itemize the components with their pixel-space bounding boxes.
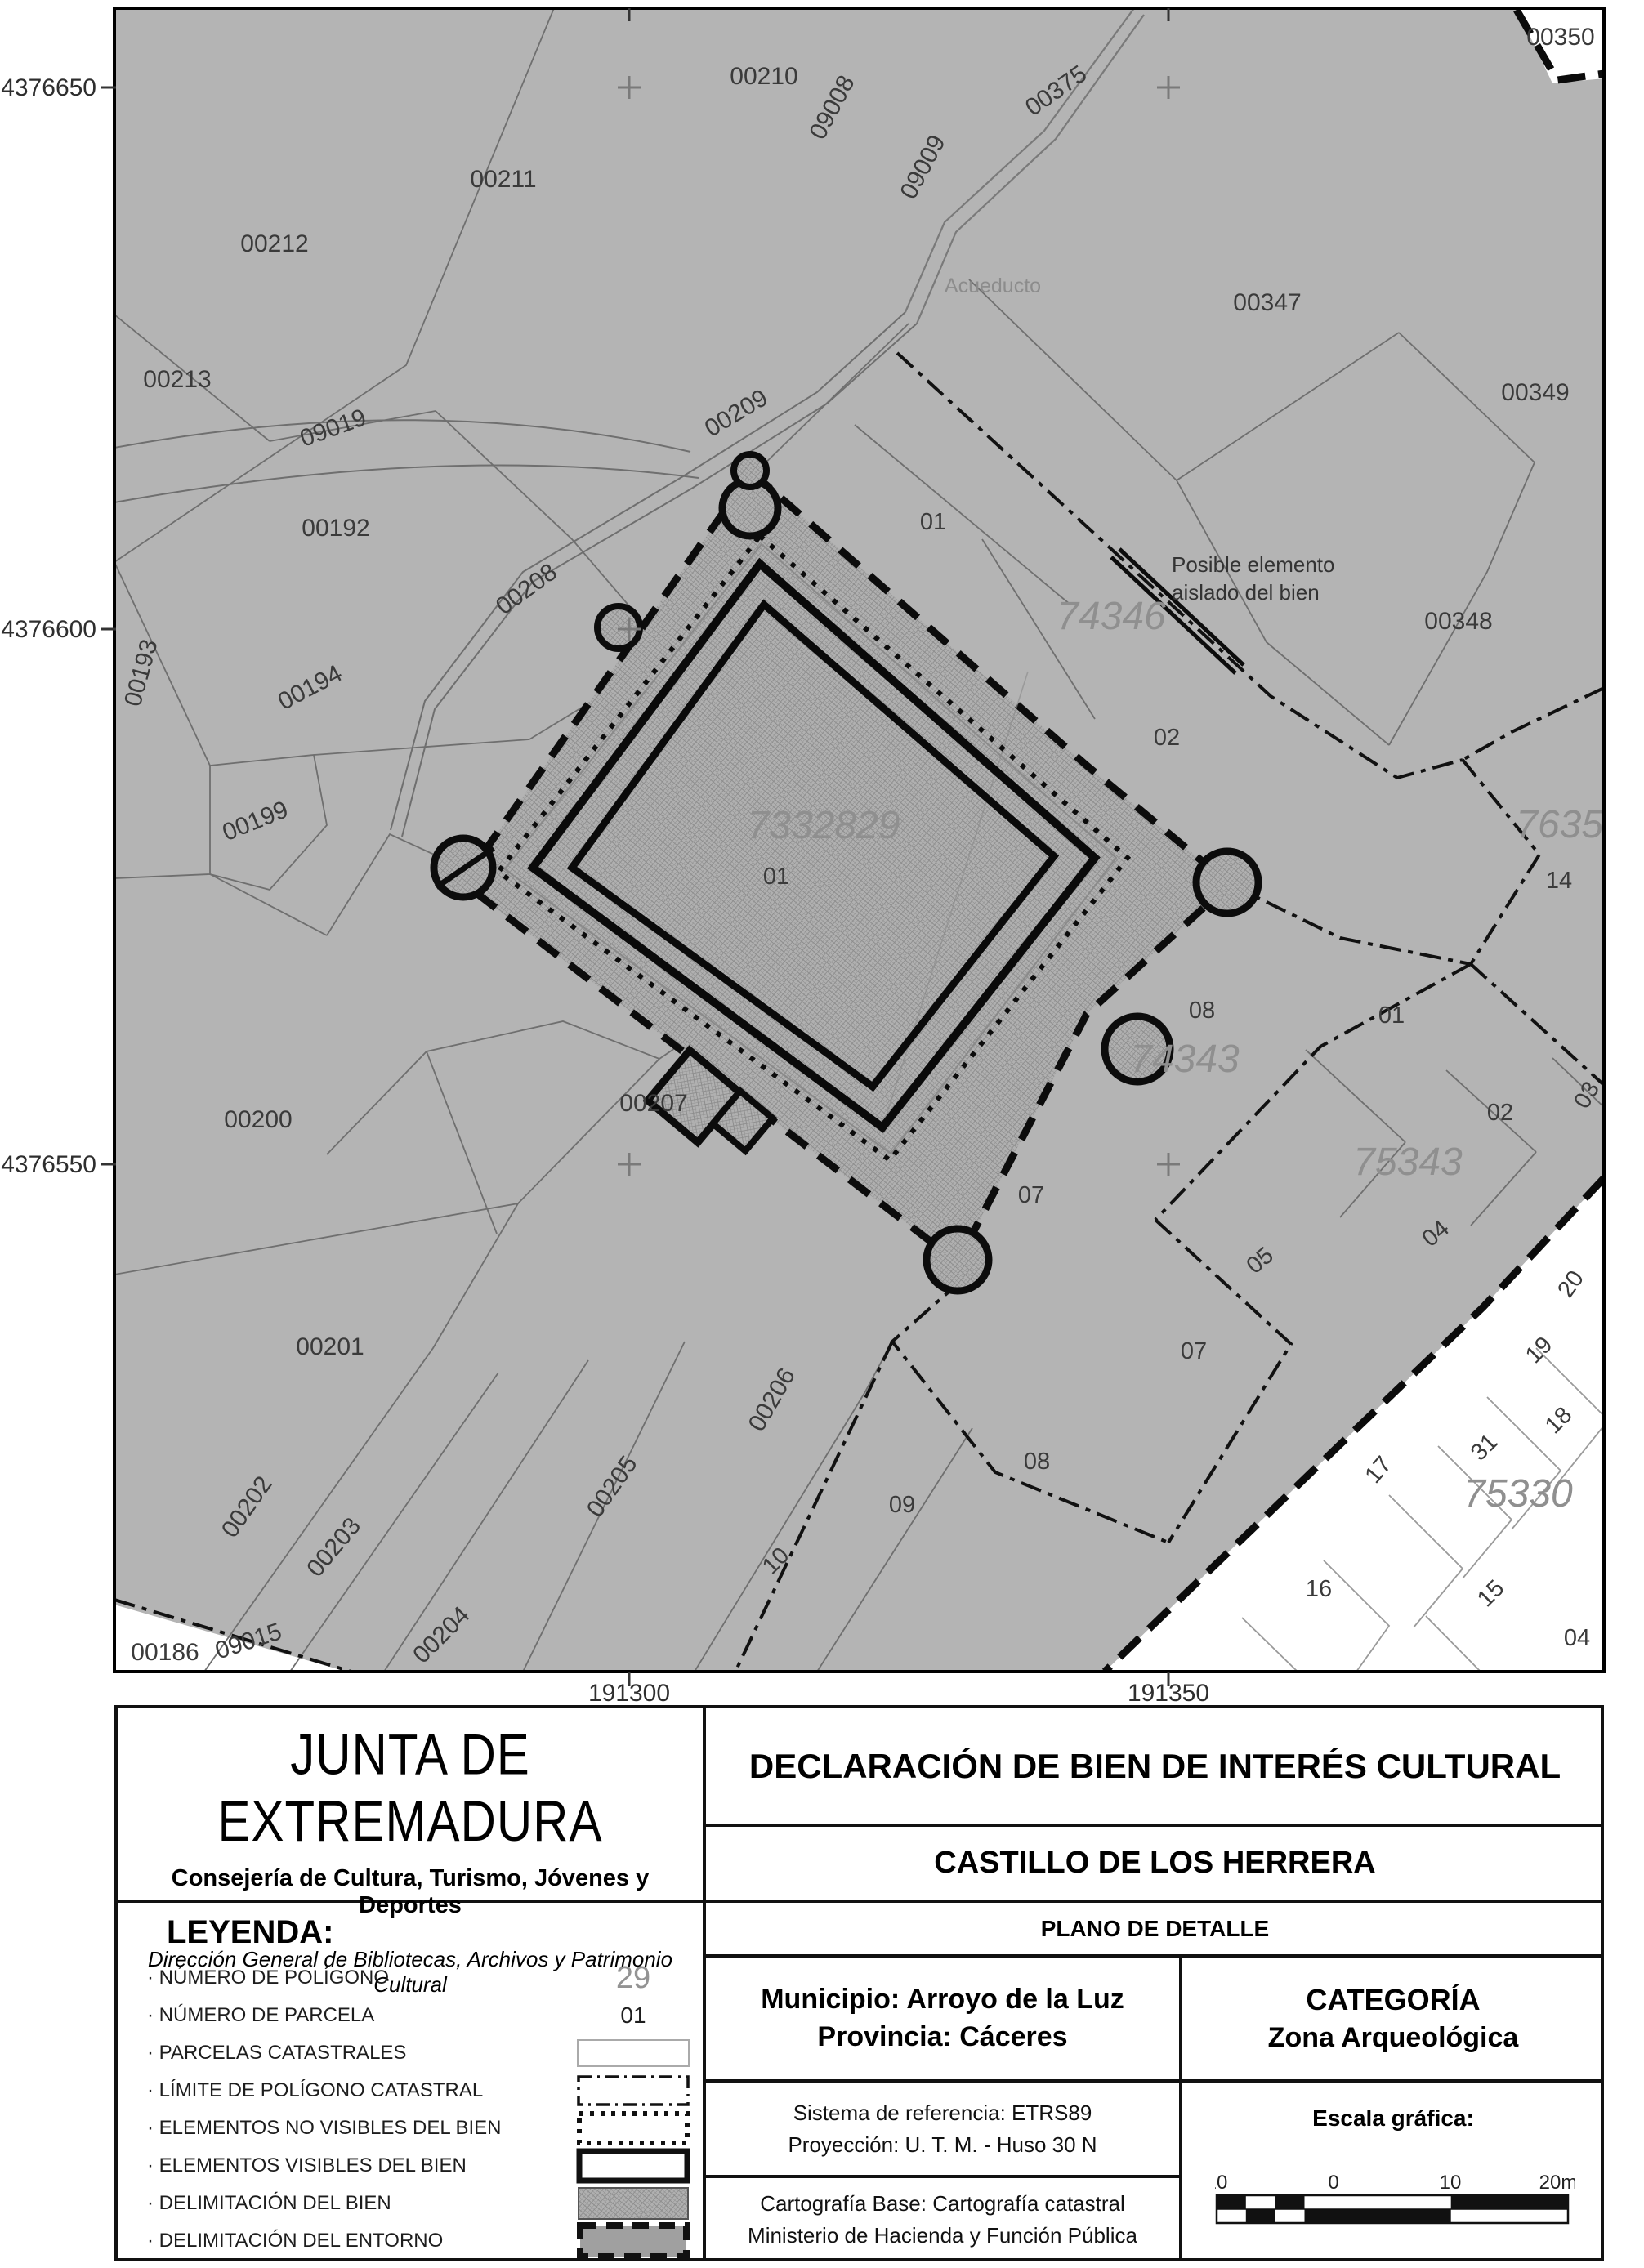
legend-row-bien-delimitation: · DELIMITACIÓN DEL BIEN bbox=[147, 2185, 703, 2222]
legend-cell: LEYENDA: · NÚMERO DE POLÍGONO 29 · NÚMER… bbox=[118, 1903, 706, 2261]
tower-northwest bbox=[597, 606, 640, 649]
province: Provincia: Cáceres bbox=[817, 2019, 1067, 2056]
map-label: 00192 bbox=[302, 515, 369, 542]
map-label: 04 bbox=[1564, 1625, 1590, 1651]
legend-bullet: · bbox=[147, 1967, 154, 1989]
legend-label: · ELEMENTOS NO VISIBLES DEL BIEN bbox=[147, 2117, 564, 2140]
map-label: aislado del bien bbox=[1172, 580, 1320, 605]
legend-label: · ELEMENTOS VISIBLES DEL BIEN bbox=[147, 2154, 564, 2177]
legend-label: · NÚMERO DE PARCELA bbox=[147, 2004, 564, 2027]
legend-swatch bbox=[564, 2221, 703, 2261]
map-label: 01 bbox=[763, 864, 789, 890]
bic-declaration-sheet: 0021000211002120021309019001920019300194… bbox=[0, 0, 1644, 2268]
legend-bullet: · bbox=[147, 2004, 154, 2026]
map-label: 75330 bbox=[1463, 1472, 1573, 1516]
legend-bullet: · bbox=[147, 2079, 154, 2101]
legend-label: · LÍMITE DE POLÍGONO CATASTRAL bbox=[147, 2079, 564, 2102]
elements-not-visible-swatch bbox=[576, 2110, 690, 2146]
map-label: 00349 bbox=[1501, 379, 1569, 406]
map-label: 7332829 bbox=[748, 804, 900, 847]
legend-title: LEYENDA: bbox=[167, 1914, 703, 1951]
monument-name: CASTILLO DE LOS HERRERA bbox=[934, 1846, 1375, 1881]
cadastral-parcels-swatch bbox=[576, 2038, 690, 2068]
legend-swatch bbox=[564, 2185, 703, 2221]
bien-delimitation-swatch bbox=[576, 2185, 690, 2221]
map-label: 74346 bbox=[1057, 595, 1166, 638]
parcel-number-sample: 01 bbox=[620, 2002, 646, 2029]
axis-y-label: 4376600 bbox=[1, 616, 96, 643]
legend-bullet: · bbox=[147, 2230, 154, 2252]
map-label: 00207 bbox=[619, 1090, 687, 1117]
scale-bar: 10 0 10 20m bbox=[1215, 2172, 1575, 2235]
carto-base: Cartografía Base: Cartografía catastral bbox=[760, 2188, 1125, 2220]
axis-y-label: 4376650 bbox=[1, 74, 96, 101]
legend-row-elements-visible: · ELEMENTOS VISIBLES DEL BIEN bbox=[147, 2147, 703, 2185]
legend-text: ELEMENTOS VISIBLES DEL BIEN bbox=[159, 2154, 467, 2176]
map-label: 08 bbox=[1024, 1449, 1050, 1475]
municipality: Municipio: Arroyo de la Luz bbox=[761, 1981, 1124, 2019]
legend-row-polygon-limit: · LÍMITE DE POLÍGONO CATASTRAL bbox=[147, 2072, 703, 2110]
doc-title-cell: DECLARACIÓN DE BIEN DE INTERÉS CULTURAL bbox=[706, 1708, 1604, 1827]
map-label: 01 bbox=[1378, 1002, 1405, 1029]
legend-bullet: · bbox=[147, 2192, 154, 2214]
plan-type-cell: PLANO DE DETALLE bbox=[706, 1903, 1604, 1958]
legend-text: NÚMERO DE POLÍGONO bbox=[159, 1967, 389, 1989]
tower-east bbox=[1196, 851, 1258, 913]
map-label: 09 bbox=[889, 1492, 915, 1518]
scale-tick-label: 0 bbox=[1328, 2172, 1338, 2194]
axis-y-label: 4376550 bbox=[1, 1151, 96, 1178]
scale-bar-checker bbox=[1217, 2195, 1568, 2223]
tower-north-cap bbox=[734, 454, 766, 487]
ref-system: Sistema de referencia: ETRS89 bbox=[793, 2097, 1092, 2129]
elements-visible-swatch bbox=[576, 2148, 690, 2184]
map-label: 14 bbox=[1546, 868, 1572, 894]
map-label: 00212 bbox=[240, 230, 308, 257]
map-label: 00201 bbox=[296, 1333, 364, 1360]
legend-swatch bbox=[564, 2074, 703, 2107]
map-label: 07 bbox=[1018, 1182, 1044, 1208]
scale-tick-label: 20m bbox=[1539, 2172, 1575, 2194]
legend-row-elements-not-visible: · ELEMENTOS NO VISIBLES DEL BIEN bbox=[147, 2110, 703, 2147]
axis-x-label: 191350 bbox=[1128, 1680, 1209, 1704]
legend-bullet: · bbox=[147, 2117, 154, 2139]
scale-label: Escala gráfica: bbox=[1182, 2105, 1604, 2132]
map-label: 00211 bbox=[470, 166, 536, 193]
legend-row-entorno-delimitation: · DELIMITACIÓN DEL ENTORNO bbox=[147, 2222, 703, 2260]
org-cell: JUNTA DE EXTREMADURA Consejería de Cultu… bbox=[118, 1708, 706, 1903]
legend-label: · NÚMERO DE POLÍGONO bbox=[147, 1967, 564, 1989]
map-label: 16 bbox=[1306, 1576, 1332, 1602]
category-label: CATEGORÍA bbox=[1306, 1983, 1480, 2017]
reference-cell: Sistema de referencia: ETRS89 Proyección… bbox=[706, 2083, 1182, 2178]
map-label: 00348 bbox=[1424, 608, 1492, 635]
cadastral-map: 0021000211002120021309019001920019300194… bbox=[0, 0, 1644, 1704]
map-label: 02 bbox=[1154, 725, 1180, 751]
map-label: 75343 bbox=[1353, 1141, 1463, 1184]
scale-bar-graphic: 10 0 10 20m bbox=[1215, 2172, 1575, 2231]
map-label: Posible elemento bbox=[1172, 552, 1334, 577]
org-name: JUNTA DE EXTREMADURA bbox=[118, 1721, 703, 1855]
scale-tick-label: 10 bbox=[1440, 2172, 1462, 2194]
ministry: Ministerio de Hacienda y Función Pública bbox=[748, 2220, 1137, 2252]
legend-row-cadastral-parcels: · PARCELAS CATASTRALES bbox=[147, 2034, 703, 2072]
legend-bullet: · bbox=[147, 2042, 154, 2064]
monument-cell: CASTILLO DE LOS HERRERA bbox=[706, 1827, 1604, 1903]
projection: Proyección: U. T. M. - Huso 30 N bbox=[788, 2129, 1097, 2161]
map-label: 00213 bbox=[143, 366, 211, 393]
tower-south bbox=[927, 1229, 989, 1291]
legend-swatch bbox=[564, 2110, 703, 2146]
plan-type: PLANO DE DETALLE bbox=[1041, 1916, 1269, 1942]
map-label: 00347 bbox=[1233, 289, 1301, 316]
title-block: JUNTA DE EXTREMADURA Consejería de Cultu… bbox=[114, 1705, 1604, 2261]
map-label: 74343 bbox=[1130, 1038, 1240, 1081]
map-label: 02 bbox=[1487, 1100, 1513, 1126]
map-label: 08 bbox=[1189, 998, 1215, 1024]
legend-row-polygon-number: · NÚMERO DE POLÍGONO 29 bbox=[147, 1959, 703, 1997]
legend-text: PARCELAS CATASTRALES bbox=[159, 2042, 407, 2064]
scale-cell: Escala gráfica: 10 0 10 20m bbox=[1182, 2083, 1604, 2261]
legend-text: LÍMITE DE POLÍGONO CATASTRAL bbox=[159, 2079, 484, 2101]
legend-text: NÚMERO DE PARCELA bbox=[159, 2004, 375, 2026]
legend-text: DELIMITACIÓN DEL ENTORNO bbox=[159, 2230, 444, 2252]
legend-swatch bbox=[564, 2038, 703, 2068]
map-label: 00186 bbox=[131, 1639, 199, 1666]
legend-text: DELIMITACIÓN DEL BIEN bbox=[159, 2192, 391, 2214]
municipality-cell: Municipio: Arroyo de la Luz Provincia: C… bbox=[706, 1958, 1182, 2083]
category-value: Zona Arqueológica bbox=[1268, 2022, 1519, 2054]
legend-text: ELEMENTOS NO VISIBLES DEL BIEN bbox=[159, 2117, 502, 2139]
map-label: 00350 bbox=[1526, 24, 1594, 51]
category-cell: CATEGORÍA Zona Arqueológica bbox=[1182, 1958, 1604, 2083]
map-label: 76350 bbox=[1516, 803, 1625, 846]
cartography-cell: Cartografía Base: Cartografía catastral … bbox=[706, 2178, 1182, 2261]
map-label: Acueducto bbox=[945, 275, 1041, 297]
legend-swatch bbox=[564, 2148, 703, 2184]
entorno-delimitation-swatch bbox=[576, 2221, 690, 2261]
legend-bullet: · bbox=[147, 2154, 154, 2176]
legend-swatch: 01 bbox=[564, 2002, 703, 2029]
legend-label: · DELIMITACIÓN DEL BIEN bbox=[147, 2192, 564, 2215]
map-label: 07 bbox=[1181, 1338, 1207, 1364]
legend-row-parcel-number: · NÚMERO DE PARCELA 01 bbox=[147, 1997, 703, 2034]
legend-swatch: 29 bbox=[564, 1961, 703, 1996]
map-label: 00210 bbox=[730, 63, 797, 90]
doc-title: DECLARACIÓN DE BIEN DE INTERÉS CULTURAL bbox=[749, 1747, 1561, 1786]
scale-tick-label: 10 bbox=[1215, 2172, 1227, 2194]
polygon-number-sample: 29 bbox=[616, 1961, 650, 1996]
map-label: 00200 bbox=[224, 1106, 292, 1133]
map-label: 01 bbox=[920, 509, 946, 535]
legend-label: · DELIMITACIÓN DEL ENTORNO bbox=[147, 2230, 564, 2252]
polygon-limit-swatch bbox=[576, 2074, 690, 2107]
axis-x-label: 191300 bbox=[588, 1680, 670, 1704]
legend-label: · PARCELAS CATASTRALES bbox=[147, 2042, 564, 2065]
